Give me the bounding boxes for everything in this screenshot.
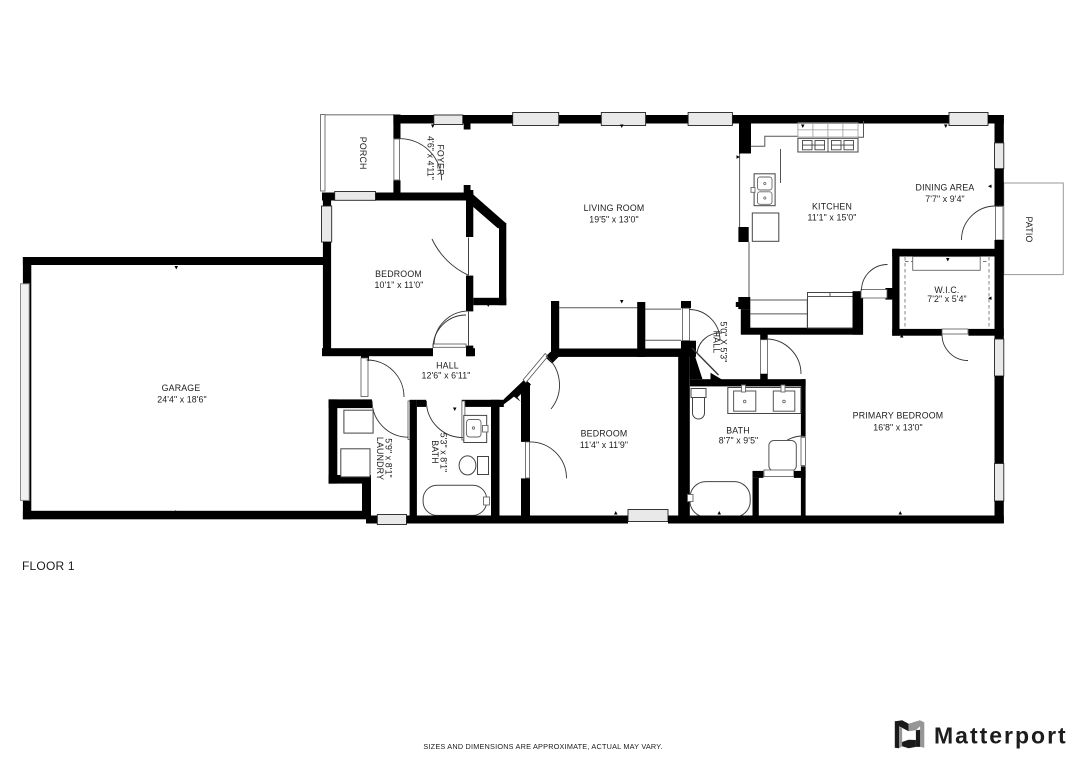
svg-text:11'1" x 15'0": 11'1" x 15'0" — [808, 213, 857, 223]
svg-text:10'1" x 11'0": 10'1" x 11'0" — [375, 280, 424, 290]
svg-text:LAUNDRY: LAUNDRY — [375, 437, 385, 480]
svg-text:5'0" X 5'3": 5'0" X 5'3" — [719, 321, 729, 362]
svg-text:SIZES AND DIMENSIONS ARE APPRO: SIZES AND DIMENSIONS ARE APPROXIMATE, AC… — [423, 742, 662, 751]
svg-text:7'7" x 9'4": 7'7" x 9'4" — [925, 194, 965, 204]
svg-text:12'6" x 6'11": 12'6" x 6'11" — [422, 371, 471, 381]
svg-text:DINING AREA: DINING AREA — [916, 183, 975, 193]
svg-text:8'7" x 9'5": 8'7" x 9'5" — [719, 436, 759, 446]
svg-text:PATIO: PATIO — [1024, 216, 1034, 242]
svg-text:FLOOR 1: FLOOR 1 — [22, 559, 75, 573]
svg-text:BEDROOM: BEDROOM — [375, 269, 422, 279]
svg-text:LIVING ROOM: LIVING ROOM — [584, 203, 645, 213]
svg-text:PORCH: PORCH — [358, 137, 368, 170]
svg-text:GARAGE: GARAGE — [162, 383, 201, 393]
svg-text:BATH: BATH — [430, 440, 440, 464]
svg-text:16'8" x 13'0": 16'8" x 13'0" — [873, 423, 923, 433]
svg-text:19'5" x 13'0": 19'5" x 13'0" — [589, 215, 639, 225]
svg-text:HALL: HALL — [436, 361, 459, 371]
svg-text:KITCHEN: KITCHEN — [812, 202, 852, 212]
svg-text:5'3" x 8'1": 5'3" x 8'1" — [438, 433, 448, 473]
svg-text:PRIMARY BEDROOM: PRIMARY BEDROOM — [853, 411, 944, 421]
svg-text:BATH: BATH — [726, 426, 750, 436]
svg-text:Matterport: Matterport — [934, 723, 1068, 749]
svg-text:24'4" x 18'6": 24'4" x 18'6" — [157, 395, 207, 405]
svg-text:5'9" x 8'1": 5'9" x 8'1" — [383, 438, 393, 478]
svg-text:4'6" x 4'11": 4'6" x 4'11" — [426, 136, 436, 180]
svg-text:BEDROOM: BEDROOM — [581, 429, 628, 439]
svg-text:7'2" x 5'4": 7'2" x 5'4" — [927, 294, 967, 304]
svg-text:11'4" x 11'9": 11'4" x 11'9" — [580, 440, 628, 450]
